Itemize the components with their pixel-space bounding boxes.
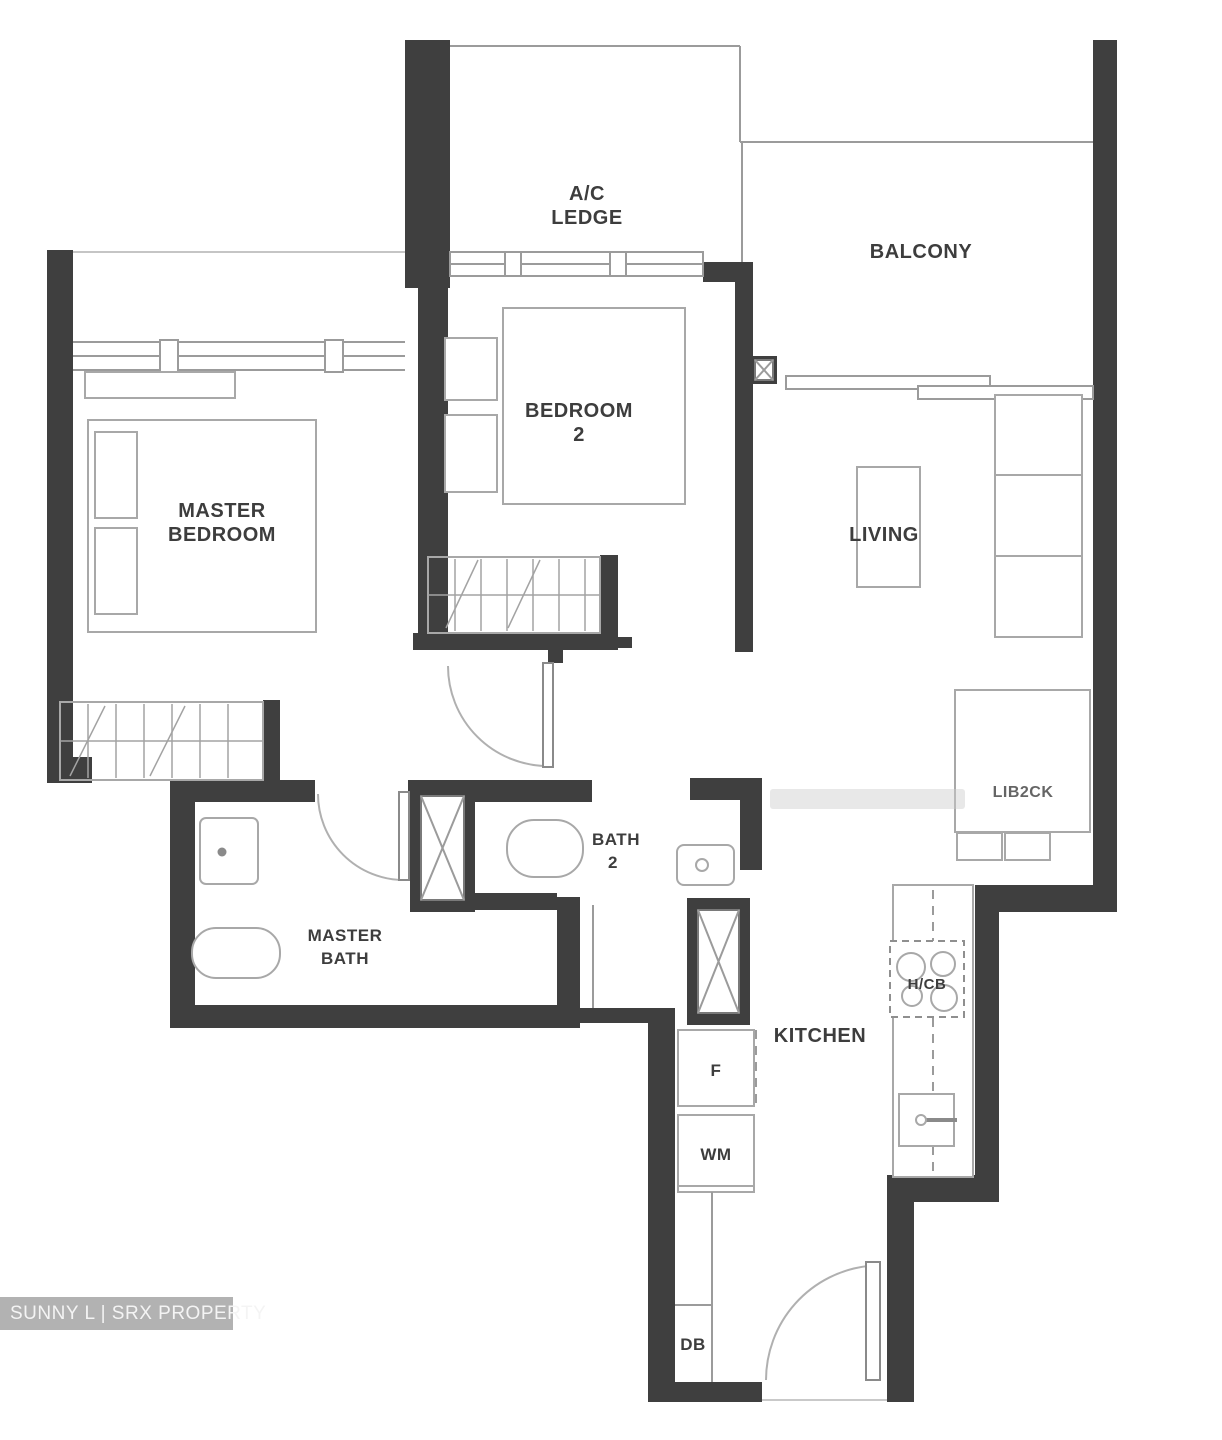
wm-label: WM — [700, 1145, 731, 1164]
dining-area: LIB2CK — [770, 690, 1090, 860]
bedroom2-label-2: 2 — [573, 424, 585, 446]
dining-bench — [957, 833, 1002, 860]
bedroom2-door-arc — [448, 666, 548, 766]
master-pillow — [95, 528, 137, 614]
bath2-label-1: BATH — [592, 830, 640, 849]
kitchen-sink — [899, 1094, 957, 1146]
room-balcony: BALCONY — [740, 142, 1093, 399]
bath2-label-2: 2 — [608, 853, 618, 872]
dining-note-label: LIB2CK — [993, 784, 1054, 801]
entrance-door — [762, 1262, 887, 1400]
watermark-badge: SUNNY L | SRX PROPERTY — [0, 1297, 233, 1330]
bedroom2-side-table — [445, 415, 497, 492]
fridge-label: F — [711, 1061, 722, 1080]
washing-machine: WM — [678, 1115, 754, 1192]
master-bedroom-label-2: BEDROOM — [168, 524, 276, 546]
bedroom2-side-table — [445, 338, 497, 400]
balcony-label: BALCONY — [870, 241, 973, 263]
watermark-text: SUNNY L | SRX PROPERTY — [10, 1303, 266, 1324]
dining-bench — [1005, 833, 1050, 860]
bedroom2-door-leaf — [543, 663, 553, 767]
floorplan-drawing: A/C LEDGE BALCONY BEDROOM 2 — [0, 0, 1222, 1440]
room-master-bedroom: MASTER BEDROOM — [60, 252, 405, 780]
room-ac-ledge: A/C LEDGE — [450, 46, 740, 276]
master-bedroom-window — [73, 340, 405, 372]
kitchen-hob: H/CB — [890, 941, 964, 1017]
entrance-door-leaf — [866, 1262, 880, 1380]
master-bath-label-1: MASTER — [308, 926, 383, 945]
bath2-wc — [507, 820, 583, 877]
db-label: DB — [680, 1335, 706, 1354]
room-bedroom2: BEDROOM 2 — [428, 308, 685, 767]
room-master-bath: MASTER BATH — [192, 792, 409, 978]
master-bath-door-leaf — [399, 792, 409, 880]
floorplan-canvas: A/C LEDGE BALCONY BEDROOM 2 — [0, 0, 1222, 1440]
room-living: LIVING — [849, 395, 1082, 637]
ac-ledge-label-1: A/C — [569, 183, 605, 205]
master-bath-label-2: BATH — [321, 949, 369, 968]
master-bath-door-arc — [318, 794, 404, 880]
kitchen-cabinet-left: DB — [675, 1192, 712, 1382]
kitchen-label: KITCHEN — [774, 1025, 866, 1047]
entrance-door-arc — [766, 1266, 868, 1380]
bedroom2-wardrobe — [428, 557, 600, 633]
bath2-basin — [677, 845, 734, 885]
bedroom2-label-1: BEDROOM — [525, 400, 633, 422]
master-bath-wc — [192, 928, 280, 978]
sofa — [995, 395, 1082, 637]
hob-label: H/CB — [908, 976, 947, 993]
faded-text-smudge — [770, 789, 965, 809]
master-bedroom-label-1: MASTER — [178, 500, 266, 522]
living-label: LIVING — [849, 524, 919, 546]
master-dresser — [85, 372, 235, 398]
ac-ledge-label-2: LEDGE — [551, 207, 622, 229]
dining-table — [955, 690, 1090, 832]
master-bath-vanity — [200, 818, 258, 884]
master-pillow — [95, 432, 137, 518]
fridge: F — [678, 1030, 756, 1106]
vanity-drain — [218, 848, 227, 857]
